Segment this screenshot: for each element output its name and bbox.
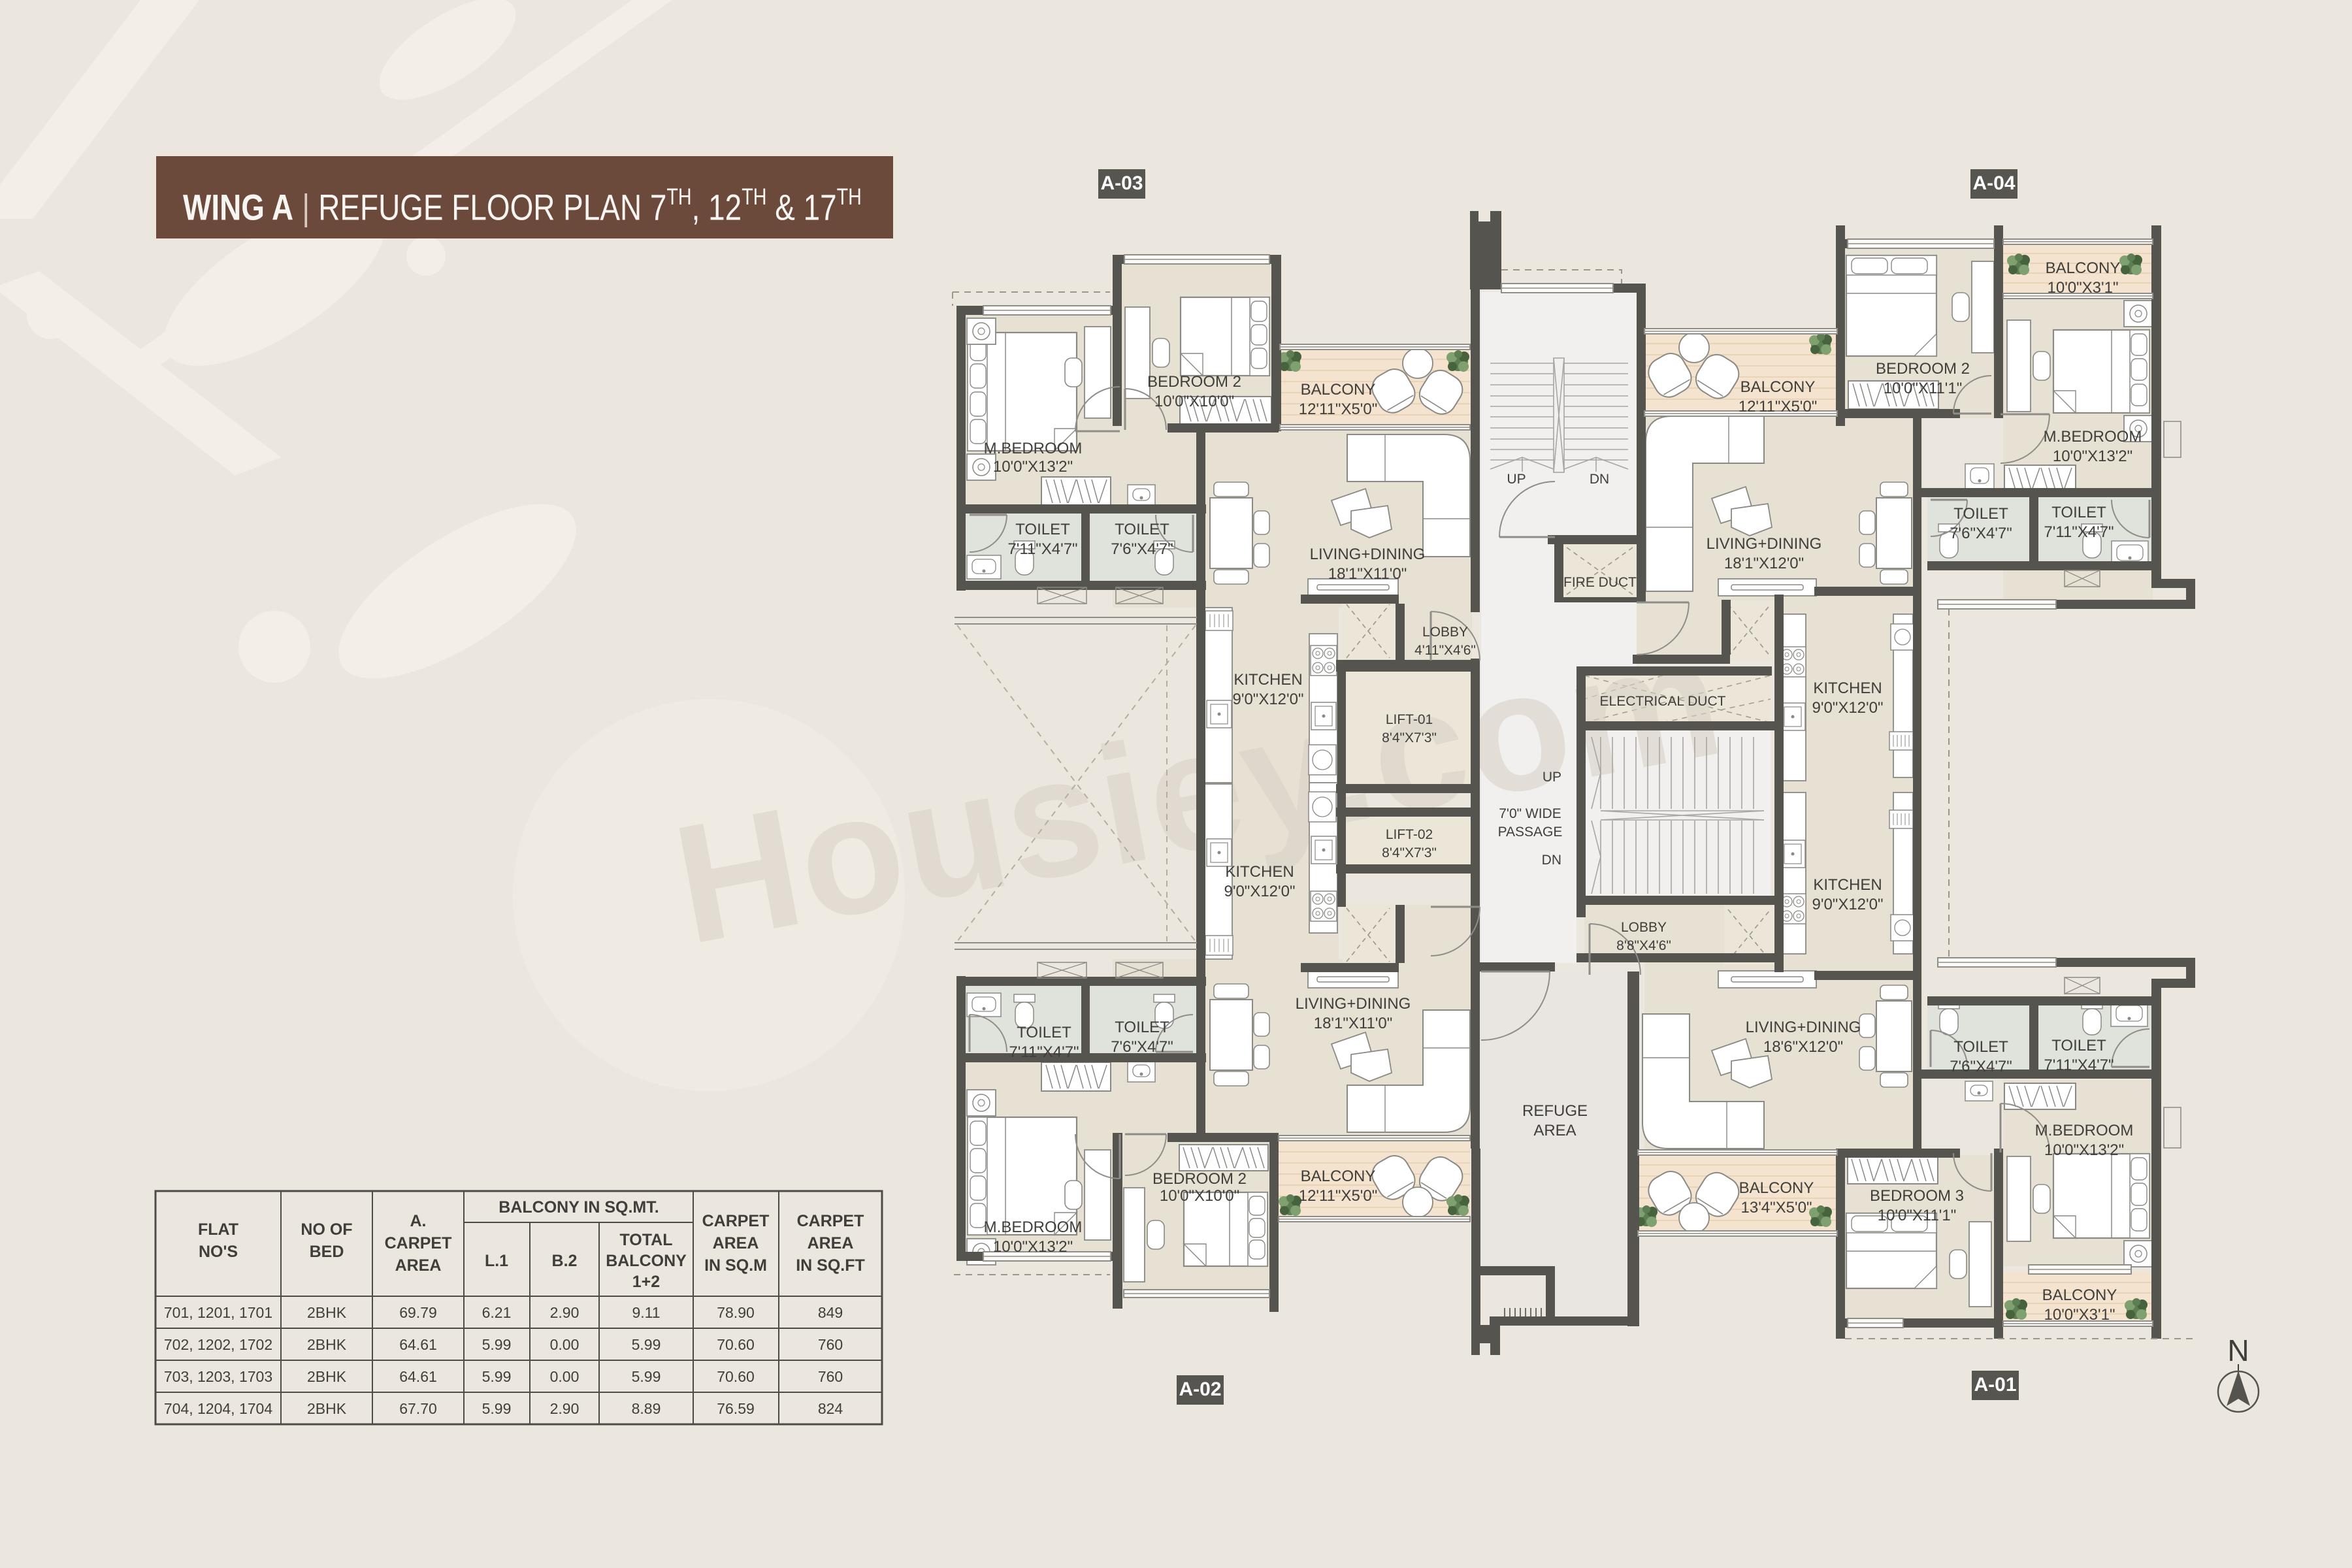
svg-text:70.60: 70.60 bbox=[717, 1336, 755, 1353]
svg-text:A-02: A-02 bbox=[1179, 1379, 1221, 1400]
svg-text:10'0"X3'1": 10'0"X3'1" bbox=[2048, 279, 2119, 297]
svg-text:FIRE DUCT: FIRE DUCT bbox=[1563, 575, 1637, 590]
svg-text:LIVING+DINING: LIVING+DINING bbox=[1707, 535, 1822, 553]
svg-text:701, 1201, 1701: 701, 1201, 1701 bbox=[164, 1304, 272, 1321]
svg-text:9.11: 9.11 bbox=[632, 1304, 660, 1321]
svg-text:7'6"X4'7": 7'6"X4'7" bbox=[1111, 540, 1173, 558]
svg-text:A-03: A-03 bbox=[1100, 172, 1143, 194]
svg-text:2BHK: 2BHK bbox=[307, 1368, 347, 1385]
svg-text:10'0"X13'2": 10'0"X13'2" bbox=[2044, 1141, 2124, 1159]
svg-text:10'0"X11'1": 10'0"X11'1" bbox=[1884, 380, 1963, 397]
svg-text:TOILET: TOILET bbox=[2051, 1037, 2106, 1054]
svg-text:12'11"X5'0": 12'11"X5'0" bbox=[1299, 400, 1378, 418]
svg-text:BALCONY: BALCONY bbox=[606, 1252, 687, 1270]
svg-text:704, 1204, 1704: 704, 1204, 1704 bbox=[164, 1400, 272, 1417]
svg-text:64.61: 64.61 bbox=[399, 1336, 437, 1353]
svg-text:BED: BED bbox=[310, 1243, 344, 1261]
svg-text:KITCHEN: KITCHEN bbox=[1813, 876, 1882, 894]
svg-text:12'11"X5'0": 12'11"X5'0" bbox=[1299, 1187, 1378, 1205]
svg-text:702, 1202, 1702: 702, 1202, 1702 bbox=[164, 1336, 272, 1353]
svg-text:7'11"X4'7": 7'11"X4'7" bbox=[2044, 523, 2114, 541]
svg-text:UP: UP bbox=[1507, 472, 1526, 487]
svg-text:70.60: 70.60 bbox=[717, 1368, 755, 1385]
svg-text:BALCONY IN SQ.MT.: BALCONY IN SQ.MT. bbox=[498, 1198, 659, 1217]
svg-text:CARPET: CARPET bbox=[702, 1212, 770, 1230]
svg-text:BALCONY: BALCONY bbox=[2046, 259, 2121, 277]
svg-text:BALCONY: BALCONY bbox=[1739, 1179, 1814, 1197]
svg-text:2BHK: 2BHK bbox=[307, 1336, 347, 1353]
svg-text:LOBBY: LOBBY bbox=[1621, 920, 1667, 935]
svg-text:10'0"X3'1": 10'0"X3'1" bbox=[2044, 1306, 2115, 1324]
svg-text:KITCHEN: KITCHEN bbox=[1813, 679, 1882, 697]
svg-text:TOILET: TOILET bbox=[1115, 1019, 1169, 1036]
svg-text:IN SQ.M: IN SQ.M bbox=[704, 1256, 767, 1275]
svg-text:LIVING+DINING: LIVING+DINING bbox=[1296, 995, 1411, 1013]
svg-text:2BHK: 2BHK bbox=[307, 1400, 347, 1417]
svg-text:BALCONY: BALCONY bbox=[1301, 381, 1376, 399]
svg-text:AREA: AREA bbox=[1533, 1122, 1576, 1139]
svg-text:10'0"X11'1": 10'0"X11'1" bbox=[1878, 1207, 1957, 1224]
svg-text:N: N bbox=[2227, 1333, 2249, 1367]
svg-text:ELECTRICAL DUCT: ELECTRICAL DUCT bbox=[1600, 694, 1726, 709]
svg-text:7'6"X4'7": 7'6"X4'7" bbox=[1950, 525, 2012, 542]
svg-text:10'0"X10'0": 10'0"X10'0" bbox=[1154, 393, 1234, 410]
svg-text:824: 824 bbox=[818, 1400, 843, 1417]
svg-text:BALCONY: BALCONY bbox=[2042, 1286, 2117, 1304]
svg-text:5.99: 5.99 bbox=[482, 1336, 512, 1353]
svg-text:CARPET: CARPET bbox=[385, 1234, 452, 1252]
svg-text:5.99: 5.99 bbox=[482, 1400, 512, 1417]
svg-text:NO'S: NO'S bbox=[199, 1243, 238, 1261]
svg-text:TOILET: TOILET bbox=[2051, 504, 2106, 521]
svg-text:NO OF: NO OF bbox=[301, 1220, 352, 1239]
svg-text:9'0"X12'0": 9'0"X12'0" bbox=[1233, 691, 1304, 708]
svg-text:13'4"X5'0": 13'4"X5'0" bbox=[1741, 1199, 1812, 1217]
svg-text:BEDROOM 2: BEDROOM 2 bbox=[1147, 373, 1241, 391]
svg-text:REFUGE: REFUGE bbox=[1522, 1102, 1588, 1120]
svg-text:760: 760 bbox=[818, 1368, 843, 1385]
svg-text:18'6"X12'0": 18'6"X12'0" bbox=[1763, 1038, 1843, 1056]
svg-text:M.BEDROOM: M.BEDROOM bbox=[2035, 1122, 2134, 1139]
svg-text:DN: DN bbox=[1542, 853, 1561, 868]
svg-text:7'6"X4'7": 7'6"X4'7" bbox=[1950, 1058, 2012, 1075]
svg-text:10'0"X13'2": 10'0"X13'2" bbox=[2053, 448, 2132, 465]
svg-text:7'11"X4'7": 7'11"X4'7" bbox=[1009, 1043, 1079, 1061]
svg-text:5.99: 5.99 bbox=[632, 1336, 661, 1353]
svg-text:AREA: AREA bbox=[395, 1256, 442, 1275]
svg-text:7'11"X4'7": 7'11"X4'7" bbox=[1007, 540, 1077, 558]
svg-text:67.70: 67.70 bbox=[399, 1400, 437, 1417]
svg-text:TOILET: TOILET bbox=[1953, 505, 2008, 523]
svg-text:12'11"X5'0": 12'11"X5'0" bbox=[1739, 398, 1818, 416]
svg-text:7'0" WIDE: 7'0" WIDE bbox=[1499, 806, 1561, 821]
svg-text:9'0"X12'0": 9'0"X12'0" bbox=[1812, 699, 1884, 717]
svg-text:B.2: B.2 bbox=[552, 1252, 578, 1270]
svg-text:9'0"X12'0": 9'0"X12'0" bbox=[1224, 883, 1296, 900]
svg-text:69.79: 69.79 bbox=[399, 1304, 437, 1321]
svg-text:TOTAL: TOTAL bbox=[619, 1231, 672, 1249]
svg-text:5.99: 5.99 bbox=[632, 1368, 661, 1385]
svg-text:BALCONY: BALCONY bbox=[1740, 378, 1816, 396]
svg-text:DN: DN bbox=[1590, 472, 1609, 487]
svg-text:4'11"X4'6": 4'11"X4'6" bbox=[1414, 643, 1476, 658]
svg-text:10'0"X13'2": 10'0"X13'2" bbox=[993, 458, 1073, 476]
svg-text:10'0"X13'2": 10'0"X13'2" bbox=[993, 1238, 1073, 1256]
svg-text:A.: A. bbox=[410, 1212, 427, 1230]
svg-text:TOILET: TOILET bbox=[1115, 521, 1169, 538]
svg-text:76.59: 76.59 bbox=[717, 1400, 755, 1417]
svg-text:PASSAGE: PASSAGE bbox=[1498, 825, 1563, 840]
svg-text:8'8"X4'6": 8'8"X4'6" bbox=[1616, 938, 1671, 953]
svg-text:BALCONY: BALCONY bbox=[1301, 1168, 1376, 1185]
svg-text:A-01: A-01 bbox=[1974, 1374, 2016, 1396]
svg-text:1+2: 1+2 bbox=[632, 1273, 660, 1291]
svg-text:0.00: 0.00 bbox=[550, 1368, 580, 1385]
svg-text:BEDROOM 3: BEDROOM 3 bbox=[1870, 1187, 1964, 1205]
svg-text:TOILET: TOILET bbox=[1953, 1038, 2008, 1056]
svg-text:8'4"X7'3": 8'4"X7'3" bbox=[1382, 845, 1437, 860]
svg-text:18'1"X12'0": 18'1"X12'0" bbox=[1724, 555, 1804, 572]
svg-text:78.90: 78.90 bbox=[717, 1304, 755, 1321]
svg-text:703, 1203, 1703: 703, 1203, 1703 bbox=[164, 1368, 272, 1385]
svg-text:5.99: 5.99 bbox=[482, 1368, 512, 1385]
svg-text:M.BEDROOM: M.BEDROOM bbox=[984, 1218, 1083, 1236]
svg-text:10'0"X10'0": 10'0"X10'0" bbox=[1160, 1187, 1239, 1205]
svg-text:TOILET: TOILET bbox=[1017, 1024, 1071, 1041]
svg-text:AREA: AREA bbox=[713, 1234, 759, 1252]
svg-text:64.61: 64.61 bbox=[399, 1368, 437, 1385]
svg-text:849: 849 bbox=[818, 1304, 843, 1321]
svg-text:M.BEDROOM: M.BEDROOM bbox=[2044, 428, 2142, 446]
svg-text:UP: UP bbox=[1543, 770, 1561, 785]
svg-text:FLAT: FLAT bbox=[198, 1220, 238, 1239]
svg-text:IN SQ.FT: IN SQ.FT bbox=[796, 1256, 865, 1275]
svg-text:2BHK: 2BHK bbox=[307, 1304, 347, 1321]
svg-text:18'1"X11'0": 18'1"X11'0" bbox=[1328, 565, 1407, 583]
svg-text:7'11"X4'7": 7'11"X4'7" bbox=[2044, 1056, 2114, 1074]
svg-text:BEDROOM 2: BEDROOM 2 bbox=[1876, 360, 1970, 378]
svg-text:18'1"X11'0": 18'1"X11'0" bbox=[1314, 1015, 1393, 1032]
svg-text:LOBBY: LOBBY bbox=[1422, 625, 1468, 640]
svg-text:9'0"X12'0": 9'0"X12'0" bbox=[1812, 896, 1884, 913]
svg-text:KITCHEN: KITCHEN bbox=[1225, 863, 1294, 881]
svg-text:BEDROOM 2: BEDROOM 2 bbox=[1152, 1170, 1247, 1188]
svg-text:LIVING+DINING: LIVING+DINING bbox=[1746, 1019, 1861, 1036]
svg-text:2.90: 2.90 bbox=[550, 1400, 580, 1417]
svg-text:LIFT-02: LIFT-02 bbox=[1386, 827, 1433, 842]
svg-text:TOILET: TOILET bbox=[1015, 521, 1070, 538]
svg-text:8.89: 8.89 bbox=[632, 1400, 661, 1417]
svg-text:AREA: AREA bbox=[808, 1234, 854, 1252]
svg-text:M.BEDROOM: M.BEDROOM bbox=[984, 440, 1083, 457]
svg-text:6.21: 6.21 bbox=[482, 1304, 512, 1321]
svg-text:2.90: 2.90 bbox=[550, 1304, 580, 1321]
svg-text:LIFT-01: LIFT-01 bbox=[1386, 712, 1433, 727]
svg-text:L.1: L.1 bbox=[485, 1252, 508, 1270]
svg-text:CARPET: CARPET bbox=[797, 1212, 864, 1230]
svg-text:8'4"X7'3": 8'4"X7'3" bbox=[1382, 730, 1437, 745]
svg-text:0.00: 0.00 bbox=[550, 1336, 580, 1353]
svg-text:LIVING+DINING: LIVING+DINING bbox=[1310, 546, 1426, 563]
svg-text:7'6"X4'7": 7'6"X4'7" bbox=[1111, 1038, 1173, 1056]
svg-text:KITCHEN: KITCHEN bbox=[1233, 671, 1302, 689]
svg-text:A-04: A-04 bbox=[1972, 172, 2015, 194]
svg-text:760: 760 bbox=[818, 1336, 843, 1353]
